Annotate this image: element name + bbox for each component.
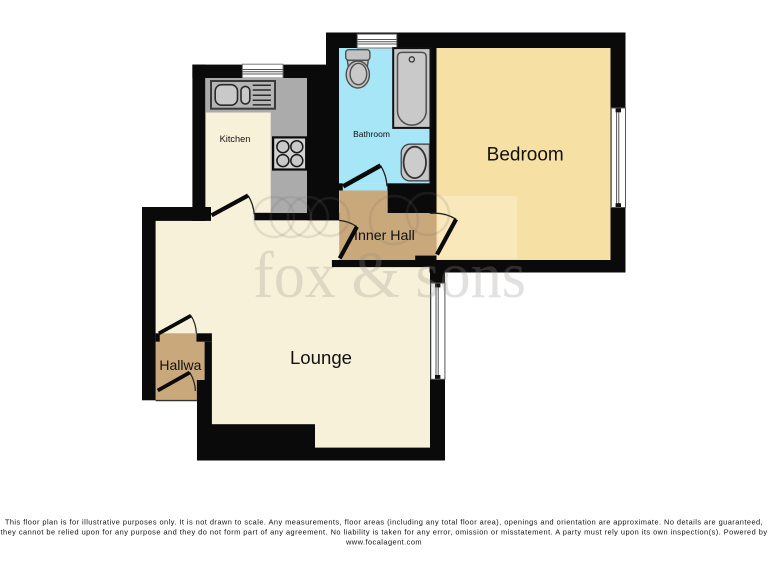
svg-text:Bathroom: Bathroom: [353, 129, 390, 139]
svg-text:Kitchen: Kitchen: [220, 134, 251, 144]
svg-text:This floor plan is for illustr: This floor plan is for illustrative purp…: [5, 518, 763, 527]
svg-text:www.focalagent.com: www.focalagent.com: [345, 537, 422, 546]
svg-text:they cannot be relied upon for: they cannot be relied upon for any purpo…: [0, 528, 767, 537]
svg-text:Lounge: Lounge: [290, 347, 352, 368]
svg-text:Inner Hall: Inner Hall: [354, 228, 415, 244]
svg-text:fox & sons: fox & sons: [253, 239, 526, 312]
svg-text:Bedroom: Bedroom: [487, 144, 564, 165]
svg-text:Hallwa: Hallwa: [159, 357, 201, 373]
